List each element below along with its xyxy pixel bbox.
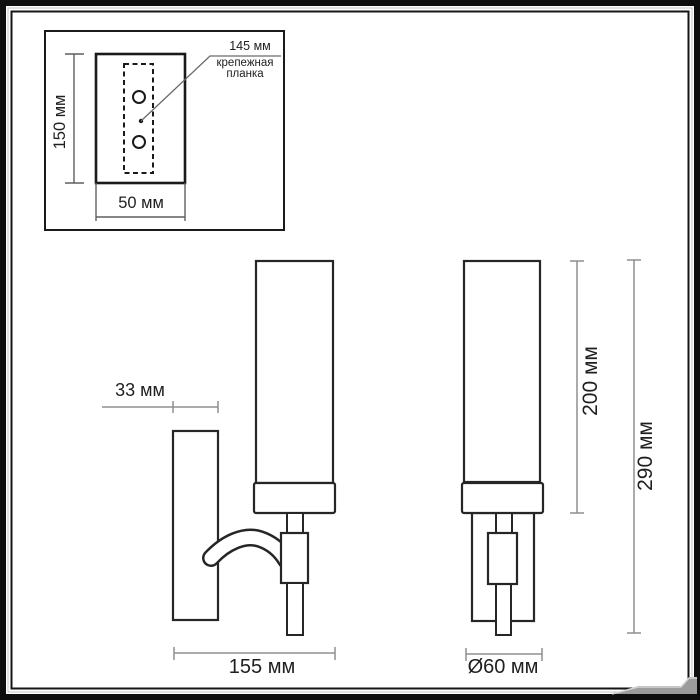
corner-artifact	[612, 677, 697, 694]
wall-offset-dim-label: 33 мм	[103, 381, 177, 400]
callout-caption-line2: планка	[208, 68, 282, 80]
overall-height-dim-label: 290 мм	[635, 411, 659, 501]
diameter-dim-label: Ø60 мм	[451, 657, 555, 679]
depth-dim-label: 155 мм	[210, 657, 314, 679]
socket-body-side	[281, 533, 308, 583]
inset-height-dim-label: 150 мм	[52, 82, 74, 162]
shade-collar-front	[462, 483, 543, 513]
glass-shade-front	[464, 261, 540, 482]
shade-collar-side	[254, 483, 335, 513]
wall-lamp-dimension-drawing: 145 мм крепежная планка 150 мм 50 мм 33 …	[0, 0, 700, 700]
glass-shade-side	[256, 261, 333, 483]
shade-height-dim-label: 200 мм	[580, 336, 604, 426]
inset-mounting-plate	[96, 54, 185, 183]
lamp-side-view	[173, 261, 335, 635]
callout-value-label: 145 мм	[220, 40, 280, 54]
inset-width-dim-label: 50 мм	[98, 195, 184, 213]
corner-artifact-shape	[612, 677, 697, 694]
screw-hole-bottom	[133, 136, 145, 148]
lower-stem-front	[496, 584, 511, 635]
upper-stem-front	[496, 513, 512, 534]
lower-stem-side	[287, 583, 303, 635]
upper-stem-side	[287, 513, 303, 534]
socket-body-front	[488, 533, 517, 584]
wall-plate-side	[173, 431, 218, 620]
lamp-front-view	[462, 261, 543, 635]
screw-hole-top	[133, 91, 145, 103]
